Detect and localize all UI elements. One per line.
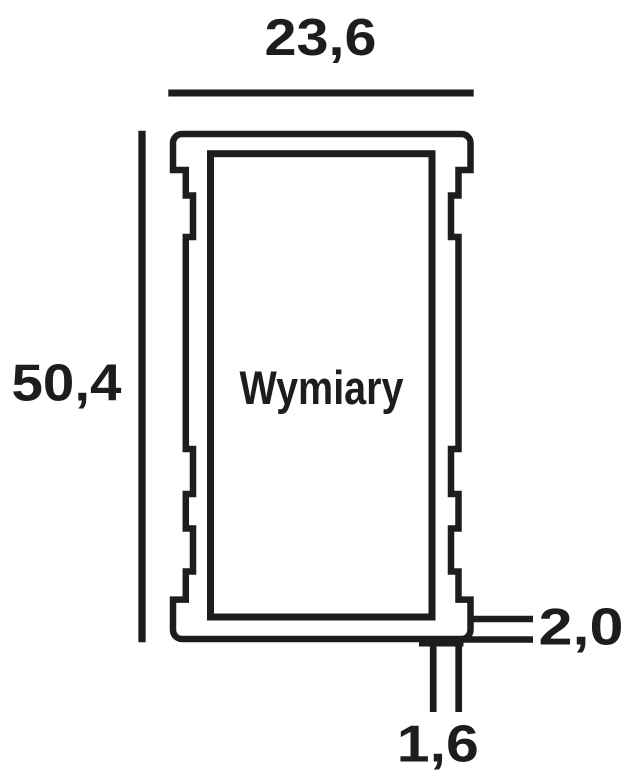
svg-text:Wymiary: Wymiary (240, 361, 404, 414)
svg-text:2,0: 2,0 (539, 599, 623, 657)
svg-text:1,6: 1,6 (397, 716, 479, 774)
svg-text:23,6: 23,6 (265, 9, 377, 67)
svg-text:50,4: 50,4 (12, 355, 122, 413)
